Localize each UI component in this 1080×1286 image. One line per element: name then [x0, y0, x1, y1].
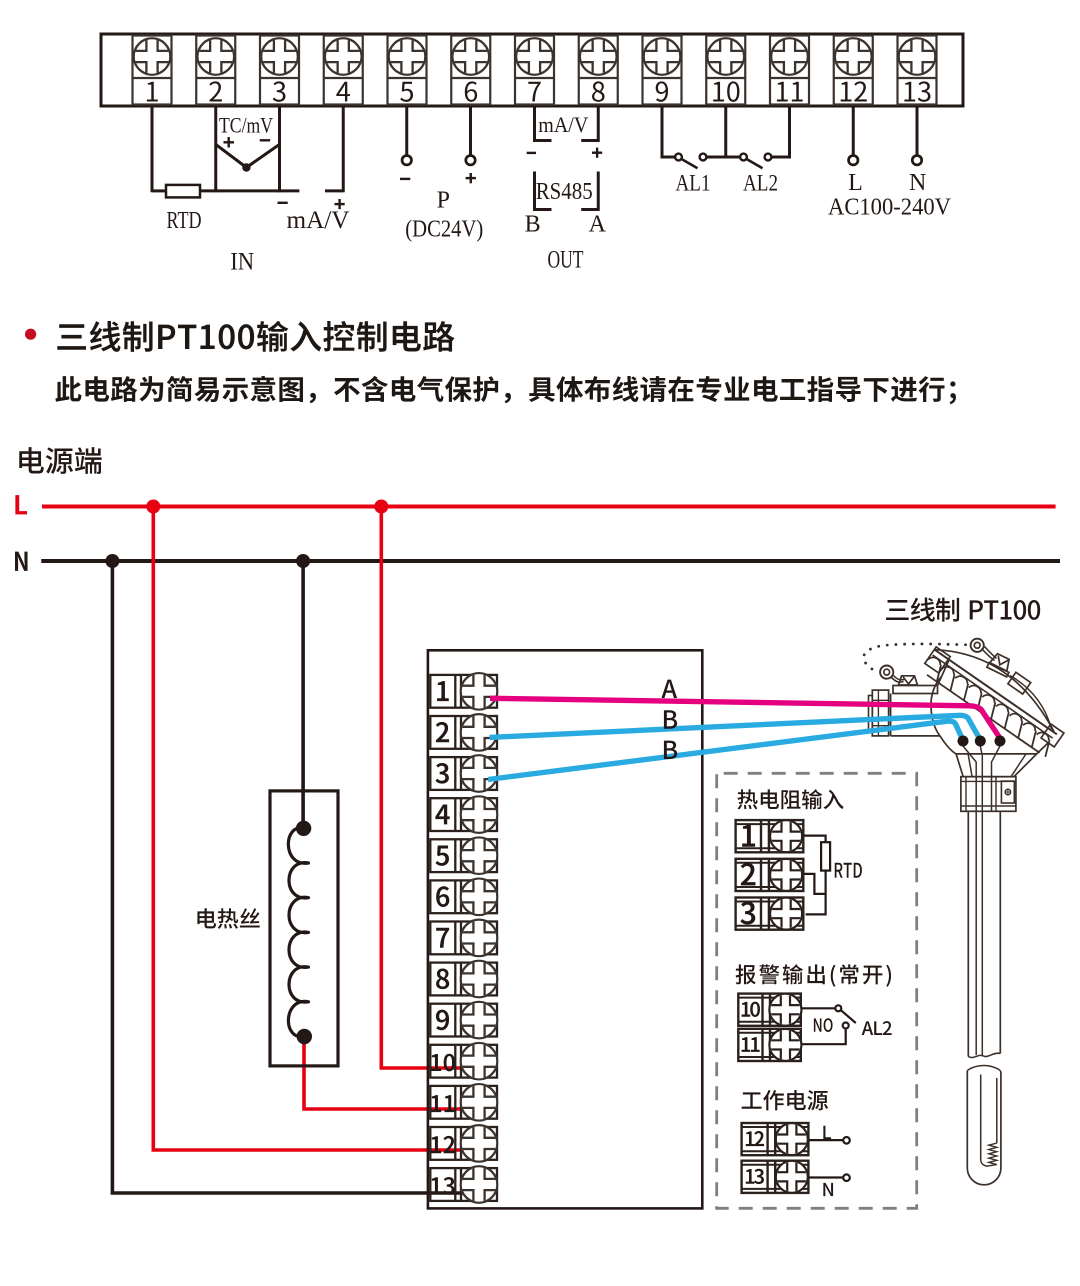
svg-text:N: N: [909, 170, 926, 196]
svg-text:L: L: [848, 170, 863, 196]
svg-text:OUT: OUT: [548, 247, 584, 274]
svg-text:mA/V: mA/V: [538, 112, 588, 137]
svg-text:IN: IN: [230, 248, 254, 275]
svg-text:RTD: RTD: [167, 208, 202, 234]
svg-text:A: A: [589, 212, 607, 238]
svg-text:(DC24V): (DC24V): [405, 216, 483, 242]
svg-text:AC100-240V: AC100-240V: [828, 195, 952, 221]
svg-text:mA/V: mA/V: [287, 207, 350, 234]
svg-text:AL1: AL1: [676, 171, 711, 196]
svg-text:P: P: [437, 188, 450, 214]
svg-text:AL2: AL2: [743, 171, 778, 196]
svg-text:RS485: RS485: [536, 179, 593, 205]
svg-text:B: B: [525, 212, 541, 238]
svg-text:TC/mV: TC/mV: [219, 113, 273, 138]
